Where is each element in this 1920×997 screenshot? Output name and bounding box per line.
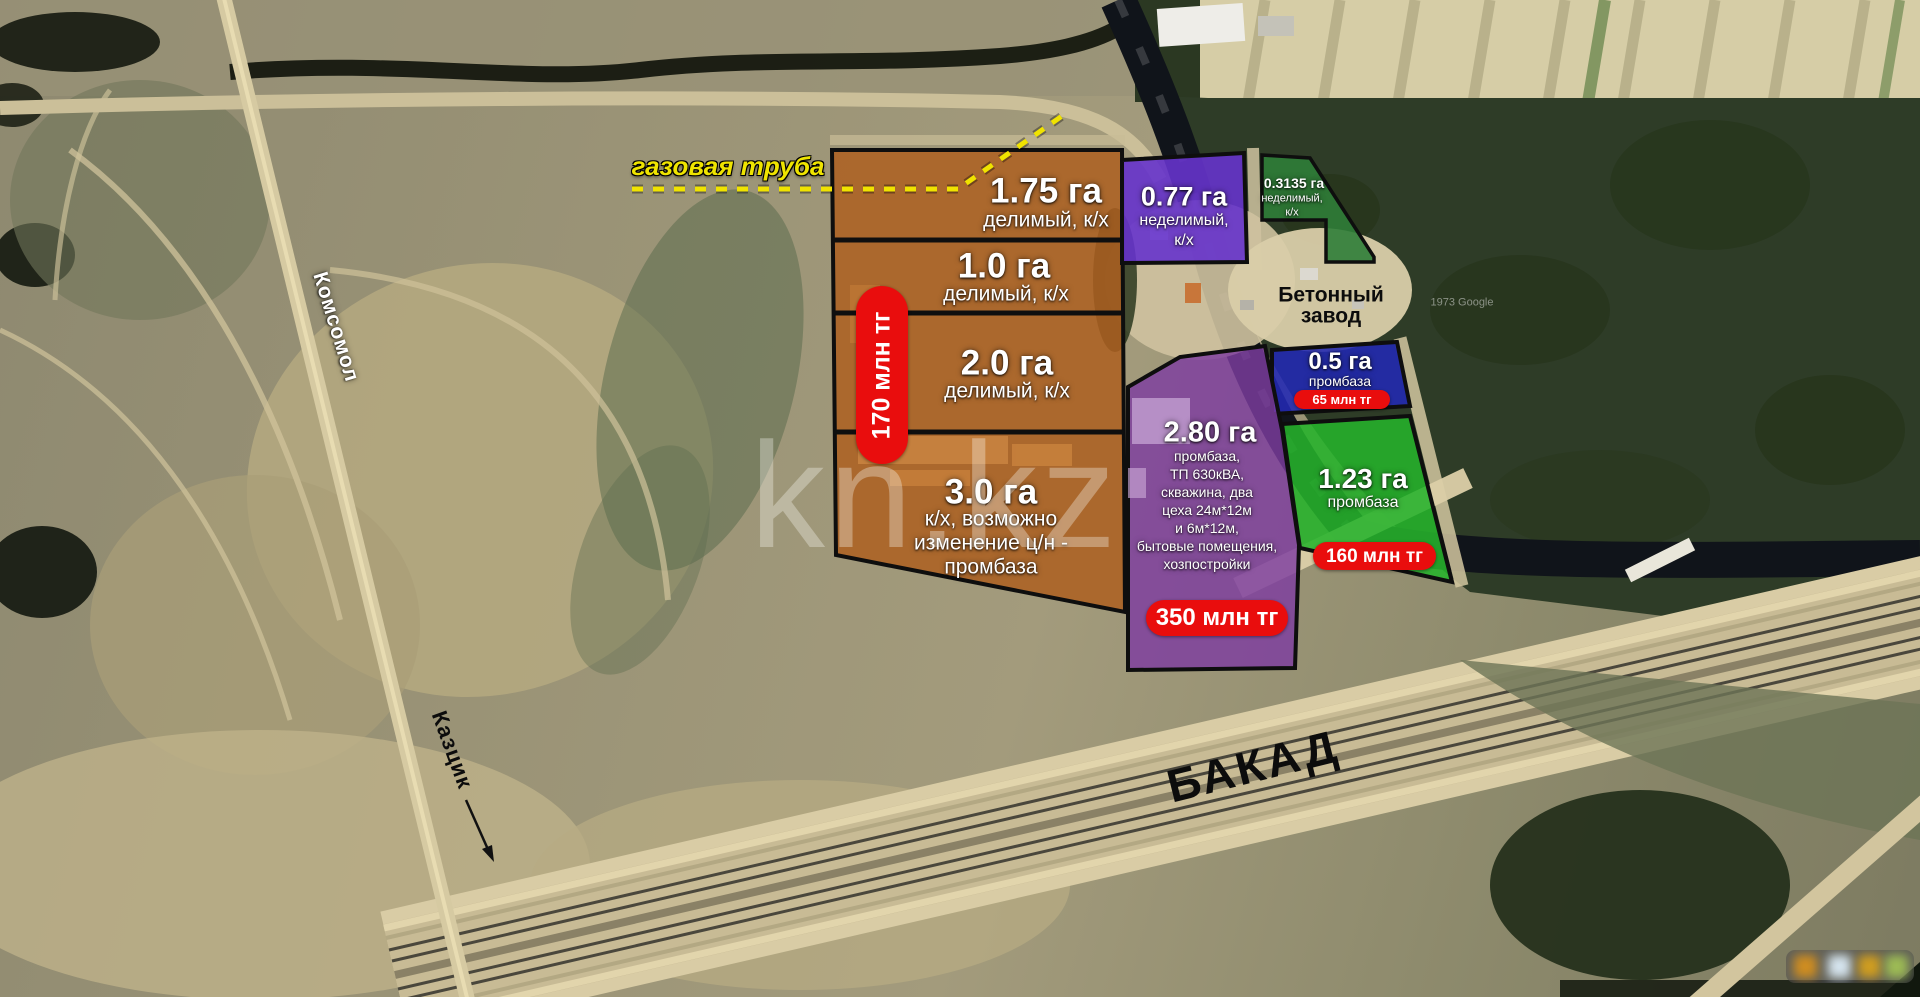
logo-chip	[1885, 955, 1908, 978]
satellite-map	[0, 0, 1920, 997]
map-canvas: газовая труба 1.75 га делимый, к/х 1.0 г…	[0, 0, 1920, 997]
white-building	[1157, 3, 1245, 47]
parcel-orange-group-shape	[832, 150, 1125, 612]
logo-chip	[1828, 955, 1851, 978]
logo-chip	[1858, 955, 1881, 978]
parcel-purple-small-shape	[1122, 153, 1247, 263]
blurred-logo-bar	[1786, 950, 1914, 983]
parcel-blue-shape	[1272, 342, 1410, 414]
logo-chip	[1794, 955, 1817, 978]
parcel-purple-large-shape	[1128, 346, 1299, 670]
fields-top-right	[1135, 0, 1920, 102]
